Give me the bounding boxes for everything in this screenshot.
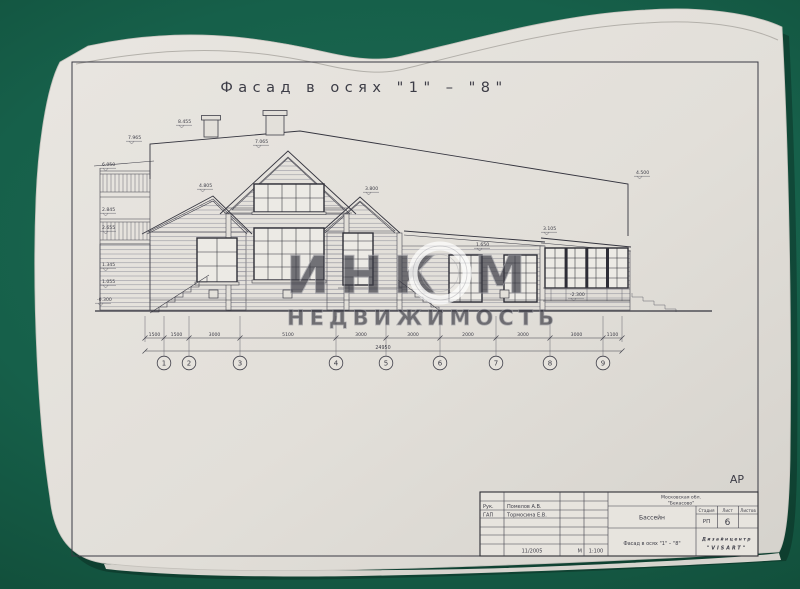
- blueprint-photo: 1500150030005100300030002000300030001100…: [0, 0, 800, 589]
- elevation-value: 6.050: [102, 162, 115, 168]
- dimension-label: 1500: [149, 332, 161, 338]
- stamp-drawing-title: Фасад в осях "1" – "8": [623, 541, 680, 547]
- elevation-value: 1.345: [102, 262, 115, 268]
- stamp-company-line2: "VISART": [707, 546, 747, 552]
- axis-label: 6: [438, 360, 443, 368]
- chimney-2: [266, 115, 284, 135]
- elevation-value: 4.500: [636, 170, 649, 176]
- stamp-role1-label: Рук.: [483, 504, 494, 510]
- stamp-sheets-label: Листов: [740, 508, 756, 513]
- stamp-region: Московская обл.: [661, 495, 701, 501]
- stamp-scale-prefix: М: [578, 549, 582, 555]
- dimension-label: 3000: [407, 332, 419, 338]
- watermark-line2: НЕДВИЖИМОСТЬ: [287, 306, 559, 330]
- axis-label: 1: [162, 360, 166, 368]
- stamp-object: Бассейн: [639, 515, 665, 522]
- total-dimension-label: 24950: [375, 345, 390, 351]
- stamp-stage-value: РП: [703, 519, 710, 525]
- elevation-value: 3.105: [543, 226, 556, 232]
- elevation-value: -0.300: [97, 297, 112, 303]
- axis-label: 2: [187, 360, 191, 368]
- axis-label: 7: [494, 360, 498, 368]
- axis-label: 3: [238, 360, 242, 368]
- central-upper-window: [252, 184, 326, 215]
- dimension-label: 1500: [171, 332, 183, 338]
- dimension-label: 3000: [571, 332, 583, 338]
- stamp-company-line1: Дизайнцентр: [701, 537, 752, 543]
- dimension-label: 5100: [282, 332, 294, 338]
- dimension-label: 3000: [517, 332, 529, 338]
- dimension-label: 2000: [462, 332, 474, 338]
- stamp-site: "Бекасово": [668, 501, 695, 507]
- section-code: АР: [730, 473, 745, 486]
- elevation-value: 4.805: [199, 183, 212, 189]
- elevation-value: 2.655: [102, 225, 115, 231]
- stamp-date: 11/2005: [522, 549, 543, 555]
- axis-label: 9: [601, 360, 605, 368]
- elevation-value: -2.300: [570, 292, 585, 298]
- axis-label: 8: [548, 360, 552, 368]
- title-block: Рук. Помелов А.В. ГАП Тормосина Е.В. 11/…: [480, 492, 758, 556]
- chimney-1: [204, 119, 218, 137]
- watermark: ИНК М НЕДВИЖИМОСТЬ: [286, 246, 559, 330]
- axis-label: 5: [384, 360, 388, 368]
- dimension-label: 3000: [355, 332, 367, 338]
- stamp-role2-name: Тормосина Е.В.: [506, 513, 547, 519]
- axis-label: 4: [334, 360, 339, 368]
- drawing-title: Фасад в осях "1" – "8": [220, 80, 507, 96]
- dimension-label: 1100: [607, 332, 619, 338]
- photo-scene: 1500150030005100300030002000300030001100…: [0, 0, 800, 589]
- dimension-label: 3000: [209, 332, 221, 338]
- stamp-scale-value: 1:100: [589, 549, 603, 555]
- elevation-value: 3.800: [365, 186, 378, 192]
- elevation-value: 2.845: [102, 207, 115, 213]
- elevation-value: 8.455: [178, 119, 191, 125]
- elevation-value: 7.065: [255, 139, 268, 145]
- stamp-sheet-label: Лист: [722, 508, 733, 513]
- left-gable-window: [195, 238, 239, 285]
- stamp-role1-name: Помелов А.В.: [507, 504, 542, 510]
- stamp-role2-label: ГАП: [483, 513, 493, 519]
- stamp-stage-label: Стадия: [698, 508, 715, 513]
- elevation-value: 7.965: [128, 135, 141, 141]
- watermark-inkom-right: М: [474, 246, 526, 306]
- elevation-value: 1.055: [102, 279, 115, 285]
- stamp-sheet-value: 6: [725, 518, 731, 528]
